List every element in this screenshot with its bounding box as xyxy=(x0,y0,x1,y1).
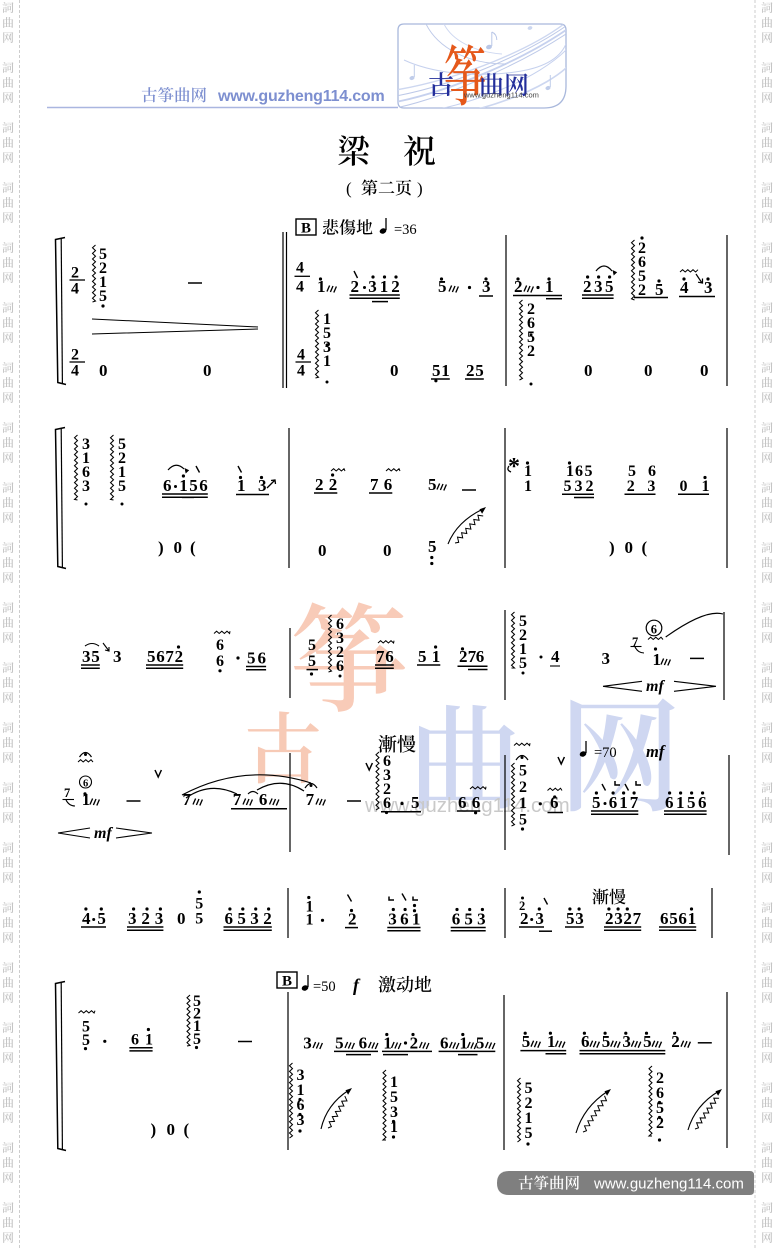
svg-text:7: 7 xyxy=(630,793,639,812)
svg-text:6: 6 xyxy=(400,910,409,929)
svg-text:1: 1 xyxy=(145,1031,153,1048)
svg-text:6: 6 xyxy=(651,623,657,637)
svg-text:1: 1 xyxy=(179,476,188,495)
svg-text:2: 2 xyxy=(623,909,632,928)
svg-text:0: 0 xyxy=(383,541,392,560)
svg-text:5: 5 xyxy=(428,475,437,494)
svg-text:4: 4 xyxy=(71,281,79,298)
svg-text:2: 2 xyxy=(627,478,635,495)
svg-text:1: 1 xyxy=(702,478,710,495)
svg-text:2: 2 xyxy=(519,899,525,913)
svg-text:6: 6 xyxy=(131,1031,139,1048)
svg-text:5: 5 xyxy=(669,909,678,928)
svg-text:B: B xyxy=(301,221,311,237)
svg-text:1: 1 xyxy=(519,795,527,812)
svg-text:5: 5 xyxy=(566,909,575,928)
svg-text:2: 2 xyxy=(315,475,324,494)
svg-text:3: 3 xyxy=(82,478,90,495)
svg-text:6: 6 xyxy=(472,793,481,812)
svg-text:5: 5 xyxy=(519,655,527,672)
svg-text:6: 6 xyxy=(383,795,391,812)
svg-text:4: 4 xyxy=(297,363,305,380)
svg-text:4: 4 xyxy=(71,363,79,380)
svg-text:1: 1 xyxy=(412,910,421,929)
svg-text:(: ( xyxy=(190,538,196,557)
svg-text:0: 0 xyxy=(177,909,186,928)
svg-text:6: 6 xyxy=(258,649,267,668)
svg-text:4: 4 xyxy=(82,909,91,928)
svg-text:2: 2 xyxy=(466,361,475,380)
svg-text:0: 0 xyxy=(625,538,634,557)
svg-text:0: 0 xyxy=(174,538,183,557)
svg-text:3: 3 xyxy=(155,909,164,928)
svg-text:): ) xyxy=(417,179,423,198)
svg-text:5: 5 xyxy=(195,911,203,928)
svg-text:7: 7 xyxy=(306,790,315,809)
svg-text:5: 5 xyxy=(605,277,614,296)
svg-text:mf: mf xyxy=(646,742,666,761)
svg-text:0: 0 xyxy=(167,1120,176,1139)
svg-text:5: 5 xyxy=(655,280,664,299)
svg-text:6: 6 xyxy=(225,909,234,928)
svg-text:4: 4 xyxy=(680,278,689,297)
svg-text:0: 0 xyxy=(99,361,108,380)
svg-text:2: 2 xyxy=(351,277,360,296)
svg-text:5: 5 xyxy=(99,288,107,305)
svg-text:1: 1 xyxy=(688,909,697,928)
svg-text:2: 2 xyxy=(391,277,400,296)
svg-text:7: 7 xyxy=(233,790,242,809)
svg-text:0: 0 xyxy=(318,541,327,560)
svg-text:2: 2 xyxy=(175,647,184,666)
svg-text:2: 2 xyxy=(605,909,614,928)
svg-text:5: 5 xyxy=(193,1031,201,1048)
svg-text:*: * xyxy=(508,454,520,480)
svg-text:5: 5 xyxy=(687,793,696,812)
svg-text:5: 5 xyxy=(411,793,420,812)
svg-text:4: 4 xyxy=(296,279,304,296)
svg-text:3: 3 xyxy=(128,909,137,928)
svg-text:0: 0 xyxy=(680,478,688,495)
svg-text:6: 6 xyxy=(452,910,461,929)
svg-text:6: 6 xyxy=(660,909,669,928)
svg-text:3: 3 xyxy=(614,909,623,928)
svg-text:6: 6 xyxy=(458,793,467,812)
svg-text:1: 1 xyxy=(306,912,314,929)
svg-text:mf: mf xyxy=(646,678,665,695)
svg-text:4: 4 xyxy=(297,347,305,364)
svg-text:5: 5 xyxy=(147,647,156,666)
svg-text:1: 1 xyxy=(524,478,532,495)
svg-text:5: 5 xyxy=(525,1125,533,1142)
svg-text:2: 2 xyxy=(638,282,646,299)
svg-text:1: 1 xyxy=(676,793,685,812)
svg-text:1: 1 xyxy=(459,1034,468,1053)
svg-text:5: 5 xyxy=(418,647,427,666)
svg-text:7: 7 xyxy=(165,647,174,666)
svg-text:2: 2 xyxy=(671,1032,680,1051)
svg-text:5: 5 xyxy=(82,1032,90,1049)
svg-text:2: 2 xyxy=(519,779,527,796)
svg-text:6: 6 xyxy=(698,793,707,812)
svg-text:2: 2 xyxy=(263,909,272,928)
svg-text:2: 2 xyxy=(71,347,79,364)
svg-text:www.guzheng114.com: www.guzheng114.com xyxy=(364,794,570,817)
svg-text:5: 5 xyxy=(247,649,256,668)
svg-text:www.guzheng114.com: www.guzheng114.com xyxy=(463,91,539,100)
svg-text:3: 3 xyxy=(575,478,583,495)
svg-text:=50: =50 xyxy=(313,979,336,995)
svg-text:5: 5 xyxy=(91,647,100,666)
svg-text:5: 5 xyxy=(519,811,527,828)
svg-text:6: 6 xyxy=(83,779,88,790)
svg-text:5: 5 xyxy=(118,478,126,495)
svg-text:5: 5 xyxy=(464,910,473,929)
svg-text:1: 1 xyxy=(380,277,389,296)
svg-text:5: 5 xyxy=(519,763,527,780)
svg-text:=70: =70 xyxy=(594,745,617,761)
svg-text:3: 3 xyxy=(647,478,655,495)
svg-text:5: 5 xyxy=(602,1032,611,1051)
svg-text:0: 0 xyxy=(584,361,593,380)
svg-text:6: 6 xyxy=(385,647,394,666)
svg-text:5: 5 xyxy=(643,1032,652,1051)
svg-text:2: 2 xyxy=(348,910,357,929)
svg-text:7: 7 xyxy=(370,475,379,494)
svg-text:4: 4 xyxy=(296,260,304,277)
svg-text:3: 3 xyxy=(535,909,544,928)
svg-text:6: 6 xyxy=(359,1034,368,1053)
svg-text:5: 5 xyxy=(189,476,198,495)
svg-text:6: 6 xyxy=(384,475,393,494)
svg-text:3: 3 xyxy=(622,1032,631,1051)
svg-text:5: 5 xyxy=(308,653,316,670)
svg-text:5: 5 xyxy=(564,478,572,495)
svg-text:(: ( xyxy=(642,538,648,557)
svg-text:2: 2 xyxy=(527,343,535,360)
svg-text:1: 1 xyxy=(323,353,331,370)
svg-text:1: 1 xyxy=(619,793,628,812)
svg-text:4: 4 xyxy=(551,647,560,666)
svg-text:1: 1 xyxy=(547,1032,556,1051)
svg-text:7: 7 xyxy=(64,786,70,800)
svg-text:mf: mf xyxy=(94,825,113,842)
svg-text:0: 0 xyxy=(644,361,653,380)
svg-text:5: 5 xyxy=(476,1034,485,1053)
svg-text:3: 3 xyxy=(575,909,584,928)
svg-text:2: 2 xyxy=(586,478,594,495)
svg-text:2: 2 xyxy=(141,909,150,928)
svg-text:(: ( xyxy=(184,1120,190,1139)
svg-text:5: 5 xyxy=(522,1032,531,1051)
svg-text:6: 6 xyxy=(476,647,485,666)
svg-text:3: 3 xyxy=(704,278,713,297)
svg-text:): ) xyxy=(158,538,164,557)
svg-text:1: 1 xyxy=(383,1034,392,1053)
svg-text:2: 2 xyxy=(329,475,338,494)
svg-text:6: 6 xyxy=(440,1034,449,1053)
svg-text:www.guzheng114.com: www.guzheng114.com xyxy=(217,88,385,105)
svg-text:2: 2 xyxy=(71,265,79,282)
svg-text:5: 5 xyxy=(428,537,437,556)
svg-text:=36: =36 xyxy=(394,222,417,238)
svg-text:0: 0 xyxy=(203,361,212,380)
svg-text:6: 6 xyxy=(336,658,344,675)
svg-text:3: 3 xyxy=(250,909,258,928)
svg-text:6: 6 xyxy=(199,476,208,495)
svg-text:7: 7 xyxy=(183,790,192,809)
svg-text:0: 0 xyxy=(390,361,399,380)
svg-text:3: 3 xyxy=(388,910,397,929)
svg-text:6: 6 xyxy=(581,1032,590,1051)
svg-text:1: 1 xyxy=(432,647,441,666)
svg-text:5: 5 xyxy=(592,793,601,812)
svg-text:): ) xyxy=(609,538,615,557)
svg-text:5: 5 xyxy=(335,1034,344,1053)
svg-text:5: 5 xyxy=(97,909,106,928)
svg-text:3: 3 xyxy=(113,647,122,666)
svg-text:6: 6 xyxy=(163,476,172,495)
svg-text:6: 6 xyxy=(609,793,618,812)
svg-text:3: 3 xyxy=(477,910,486,929)
svg-text:(: ( xyxy=(346,179,352,198)
svg-text:5: 5 xyxy=(237,909,246,928)
svg-text:www.guzheng114.com: www.guzheng114.com xyxy=(593,1176,744,1193)
svg-text:1: 1 xyxy=(441,361,450,380)
svg-text:5: 5 xyxy=(432,361,441,380)
svg-text:6: 6 xyxy=(216,653,224,670)
svg-text:5: 5 xyxy=(308,637,316,654)
svg-text:2: 2 xyxy=(410,1034,419,1053)
svg-text:2: 2 xyxy=(583,277,592,296)
svg-text:6: 6 xyxy=(156,647,165,666)
svg-text:1: 1 xyxy=(653,650,662,669)
svg-text:): ) xyxy=(151,1120,157,1139)
svg-text:3: 3 xyxy=(82,647,91,666)
svg-text:7: 7 xyxy=(376,647,385,666)
svg-text:3: 3 xyxy=(602,649,611,668)
svg-text:0: 0 xyxy=(700,361,709,380)
svg-text:3: 3 xyxy=(368,277,377,296)
svg-text:6: 6 xyxy=(259,790,268,809)
svg-text:3: 3 xyxy=(594,277,603,296)
svg-text:6: 6 xyxy=(678,909,687,928)
svg-text:6: 6 xyxy=(216,637,224,654)
svg-text:3: 3 xyxy=(303,1034,312,1053)
svg-text:6: 6 xyxy=(665,793,674,812)
svg-text:7: 7 xyxy=(633,909,642,928)
svg-text:5: 5 xyxy=(475,361,484,380)
svg-text:B: B xyxy=(282,974,292,990)
